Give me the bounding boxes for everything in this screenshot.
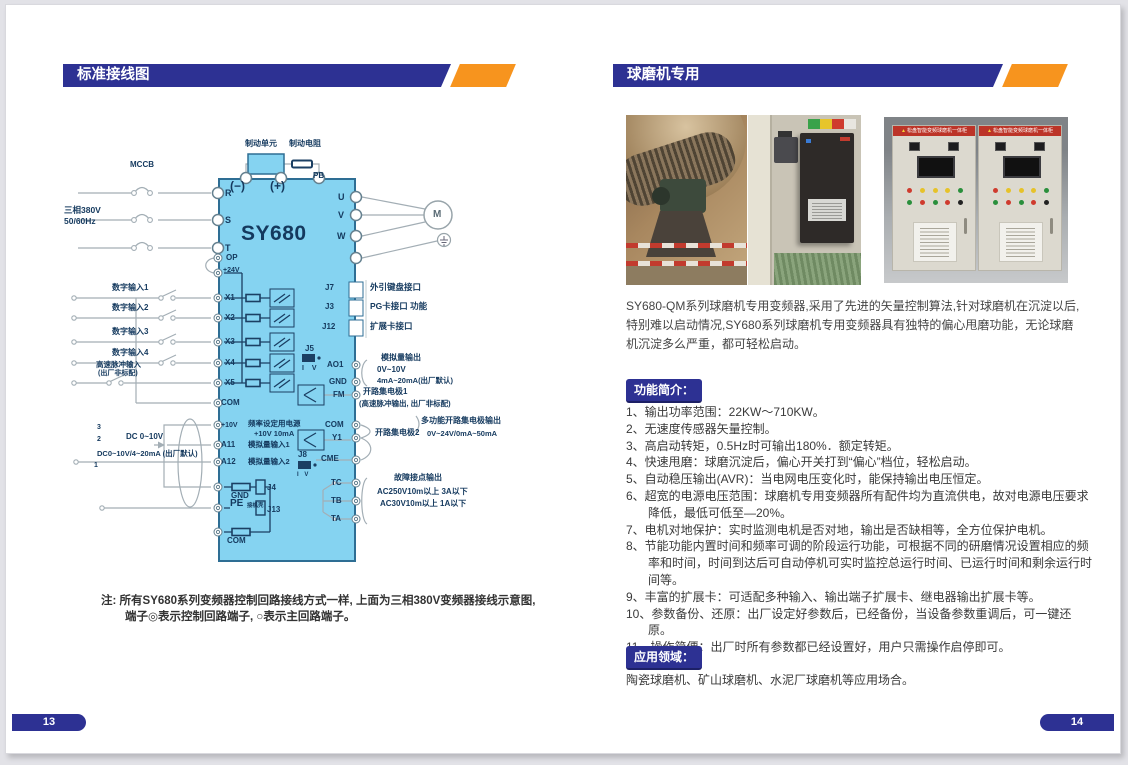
feature-item-5: 5、自动稳压输出(AVR)：当电网电压变化时，能保持输出电压恒定。 xyxy=(626,471,1094,488)
terminal-x1: X1 xyxy=(225,294,235,302)
digital-input-2: 数字输入2 xyxy=(112,304,148,312)
photo-ball-mill xyxy=(626,115,747,285)
photo-cabinet-pair: ▲松盘智能变频球磨机一体柜 ▲松盘智能变频球磨机一体柜 xyxy=(884,117,1068,283)
cabinet-banner-text: 松盘智能变频球磨机一体柜 xyxy=(993,128,1053,134)
connector-j7: J7 xyxy=(325,284,334,292)
diagram-label-mccb: MCCB xyxy=(130,161,154,169)
indicator-light xyxy=(993,188,998,193)
inverter-model: SY680 xyxy=(241,223,307,244)
panel-meter xyxy=(909,142,920,151)
push-button xyxy=(945,200,950,205)
applications-title-badge: 应用领域： xyxy=(626,646,702,670)
push-button xyxy=(1044,200,1049,205)
spec-plate xyxy=(999,222,1043,262)
digital-input-1: 数字输入1 xyxy=(112,284,148,292)
terminal-10v: +10V xyxy=(221,422,238,429)
terminal-t: T xyxy=(225,244,231,253)
fault-output-spec1: AC250V10m以上 3A以下 xyxy=(377,488,468,496)
inverter-brand-strip xyxy=(840,137,850,141)
push-button xyxy=(958,200,963,205)
indicator-light xyxy=(945,188,950,193)
section-header-left: 标准接线图 xyxy=(63,64,511,87)
safety-rail xyxy=(626,243,747,248)
photo-cabinet-interior xyxy=(748,115,861,285)
terminal-fm: FM xyxy=(333,391,345,399)
fault-output-spec2: AC30V10m以上 1A以下 xyxy=(380,500,466,508)
cabinet-banner: ▲松盘智能变频球磨机一体柜 xyxy=(893,126,975,136)
applications-text: 陶瓷球磨机、矿山球磨机、水泥厂球磨机等应用场合。 xyxy=(626,671,1084,688)
pulse-input-sub: (出厂非标配) xyxy=(98,370,138,377)
terminal-u: U xyxy=(338,193,345,202)
jumper-j8-iv: I V xyxy=(297,472,310,478)
cabinet-wiring xyxy=(774,253,861,285)
digital-input-3: 数字输入3 xyxy=(112,328,148,336)
terminal-plus: (+) xyxy=(270,180,285,192)
push-button xyxy=(1019,200,1024,205)
cabinet-door xyxy=(748,115,772,285)
banner-accent xyxy=(450,64,516,87)
page-title-left: 标准接线图 xyxy=(77,67,150,83)
mill-base xyxy=(646,211,716,257)
connector-j3: J3 xyxy=(325,303,334,311)
terminal-ai1: A11 xyxy=(221,441,235,449)
pot-pin-2: 2 xyxy=(97,436,101,443)
banner-accent xyxy=(1002,64,1068,87)
dc-input-2-label: DC0~10V/4~20mA (出厂默认) xyxy=(97,450,198,458)
terminal-ta: TA xyxy=(331,515,341,523)
terminal-com-bottom: COM xyxy=(227,537,246,545)
feature-item-8: 8、节能功能内置时间和频率可调的阶段运行功能，可根据不同的研磨情况设置相应的频率… xyxy=(626,538,1094,588)
button-row xyxy=(907,200,963,205)
terminal-r: R xyxy=(225,189,232,198)
terminal-gnd2: GND xyxy=(329,378,347,386)
note-line-1: 注: 所有SY680系列变频器控制回路接线方式一样, 上面为三相380V变频器接… xyxy=(101,593,571,609)
terminal-y1: Y1 xyxy=(332,434,342,442)
terminal-com: COM xyxy=(221,399,240,407)
page-title-right: 球磨机专用 xyxy=(627,67,700,83)
terminal-pb: PB xyxy=(313,172,324,180)
freq-supply-label: 频率设定用电源 xyxy=(248,420,301,428)
catalog-spread: 标准接线图 xyxy=(5,4,1121,754)
multi-oc-label: 多功能开路集电极输出 xyxy=(421,417,501,425)
inverter-unit xyxy=(800,133,854,243)
indicator-light xyxy=(1044,188,1049,193)
inverter-nameplate xyxy=(808,199,846,221)
indicator-light xyxy=(933,188,938,193)
door-handle xyxy=(964,218,967,234)
push-button xyxy=(907,200,912,205)
terminal-x4: X4 xyxy=(225,359,235,367)
digital-input-4: 数字输入4 xyxy=(112,349,148,357)
terminal-op: OP xyxy=(226,254,238,262)
diagram-label-supply-hz: 50/60Hz xyxy=(64,217,96,226)
terminal-w: W xyxy=(337,232,346,241)
indicator-light xyxy=(1006,188,1011,193)
diagram-label-brake-unit: 制动单元 xyxy=(245,140,277,148)
diagram-note: 注: 所有SY680系列变频器控制回路接线方式一样, 上面为三相380V变频器接… xyxy=(101,593,571,625)
motor-symbol: M xyxy=(433,210,441,220)
spec-plate xyxy=(913,222,957,262)
jumper-j5-iv: I V xyxy=(302,365,320,372)
page-number-right: 14 xyxy=(1040,714,1114,731)
expansion-card-label: 扩展卡接口 xyxy=(370,322,413,331)
terminal-x5: X5 xyxy=(225,379,235,387)
indicator-strip xyxy=(808,119,856,129)
panel-meter xyxy=(1034,142,1045,151)
push-button xyxy=(1006,200,1011,205)
feature-item-2: 2、无速度传感器矢量控制。 xyxy=(626,421,1094,438)
terminal-cme: CME xyxy=(321,455,339,463)
open-collector-2-label: 开路集电极2 xyxy=(375,429,419,437)
terminal-x3: X3 xyxy=(225,338,235,346)
indicator-light xyxy=(1031,188,1036,193)
push-button xyxy=(993,200,998,205)
diagram-label-brake-resistor: 制动电阻 xyxy=(289,140,321,148)
feature-item-4: 4、快速甩磨：球磨沉淀后，偏心开关打到“偏心”档位，轻松启动。 xyxy=(626,454,1094,471)
indicator-light xyxy=(958,188,963,193)
features-list: 1、输出功率范围：22KW～710KW。 2、无速度传感器矢量控制。 3、高启动… xyxy=(626,404,1094,656)
analog-out-range1: 0V~10V xyxy=(377,366,406,374)
intro-paragraph: SY680-QM系列球磨机专用变频器,采用了先进的矢量控制算法,针对球磨机在沉淀… xyxy=(626,297,1084,354)
banner-bar: 球磨机专用 xyxy=(613,64,1003,87)
terminal-ao1: AO1 xyxy=(327,361,343,369)
button-row xyxy=(993,200,1049,205)
panel-display xyxy=(1003,156,1041,178)
fault-output-label: 故障接点输出 xyxy=(394,474,442,482)
indicator-light xyxy=(1019,188,1024,193)
mill-motor xyxy=(660,179,706,213)
warning-triangle-icon: ▲ xyxy=(901,128,906,134)
analog-input-2-label: 模拟量输入2 xyxy=(248,458,290,466)
indicator-light xyxy=(920,188,925,193)
cabinet-banner: ▲松盘智能变频球磨机一体柜 xyxy=(979,126,1061,136)
analog-out-label: 模拟量输出 xyxy=(381,354,421,362)
terminal-minus: (−) xyxy=(230,180,245,192)
panel-meter xyxy=(995,142,1006,151)
terminal-tb: TB xyxy=(331,497,342,505)
contactor xyxy=(774,137,798,163)
open-collector-1-sub: (高速脉冲输出, 出厂非标配) xyxy=(359,400,451,408)
open-collector-1-label: 开路集电极1 xyxy=(363,388,407,396)
push-button xyxy=(1031,200,1036,205)
feature-item-7: 7、电机对地保护：实时监测电机是否对地，输出是否缺相等，全方位保护电机。 xyxy=(626,522,1094,539)
banner-bar: 标准接线图 xyxy=(63,64,451,87)
features-title-badge: 功能简介： xyxy=(626,379,702,403)
safety-rail xyxy=(626,261,747,266)
feature-item-3: 3、高启动转矩，0.5Hz时可输出180%．额定转矩。 xyxy=(626,438,1094,455)
connector-j12: J12 xyxy=(322,323,335,331)
pot-pin-1: 1 xyxy=(94,462,98,469)
terminal-x2: X2 xyxy=(225,314,235,322)
indicator-lights-row xyxy=(907,188,963,193)
diagram-label-supply: 三相380V xyxy=(64,206,101,215)
feature-item-1: 1、输出功率范围：22KW～710KW。 xyxy=(626,404,1094,421)
terminal-pe: PE xyxy=(230,499,243,509)
panel-display xyxy=(917,156,955,178)
jumper-j4: J4 xyxy=(267,484,276,492)
panel-meter xyxy=(948,142,959,151)
door-handle xyxy=(1050,218,1053,234)
control-cabinet: ▲松盘智能变频球磨机一体柜 xyxy=(978,125,1062,271)
inverter-display xyxy=(806,139,811,143)
terminal-v: V xyxy=(338,211,344,220)
feature-item-10: 10、参数备份、还原：出厂设定好参数后，已经备份，当设备参数重调后，可一键还原。 xyxy=(626,606,1094,640)
multi-oc-range: 0V~24V/0mA~50mA xyxy=(427,430,497,438)
analog-input-1-label: 模拟量输入1 xyxy=(248,441,290,449)
terminal-ai2: A12 xyxy=(221,458,236,466)
push-button xyxy=(933,200,938,205)
terminal-com2: COM xyxy=(325,421,344,429)
analog-out-range2: 4mA~20mA(出厂默认) xyxy=(377,377,453,385)
wiring-diagram: MCCB 三相380V 50/60Hz 制动单元 制动电阻 (−) (+) PB… xyxy=(64,133,594,603)
indicator-light xyxy=(907,188,912,193)
jumper-j8: J8 xyxy=(298,451,307,459)
pg-card-label: PG卡接口 功能 xyxy=(370,302,427,311)
note-line-2: 端子◎表示控制回路端子, ○表示主回路端子。 xyxy=(101,609,571,625)
page-number-left: 13 xyxy=(12,714,86,731)
control-cabinet: ▲松盘智能变频球磨机一体柜 xyxy=(892,125,976,271)
dc-input-1-label: DC 0~10V xyxy=(126,433,163,441)
cabinet-banner-text: 松盘智能变频球磨机一体柜 xyxy=(907,128,967,134)
push-button xyxy=(920,200,925,205)
warning-triangle-icon: ▲ xyxy=(987,128,992,134)
terminal-pe-sub: 接机壳 xyxy=(247,504,264,510)
terminal-24v: +24V xyxy=(223,267,240,274)
pot-pin-3: 3 xyxy=(97,424,101,431)
indicator-lights-row xyxy=(993,188,1049,193)
freq-supply-spec: +10V 10mA xyxy=(254,430,294,438)
terminal-s: S xyxy=(225,216,231,225)
feature-item-6: 6、超宽的电源电压范围：球磨机专用变频器所有配件均为直流供电，故对电源电压要求降… xyxy=(626,488,1094,522)
jumper-j5: J5 xyxy=(305,345,314,353)
pulse-input-label: 高速脉冲输入 xyxy=(96,361,141,369)
section-header-right: 球磨机专用 xyxy=(613,64,1063,87)
feature-item-9: 9、丰富的扩展卡：可适配多种输入、输出端子扩展卡、继电器输出扩展卡等。 xyxy=(626,589,1094,606)
keyboard-port-label: 外引键盘接口 xyxy=(370,283,421,292)
jumper-j13: J13 xyxy=(267,506,280,514)
terminal-tc: TC xyxy=(331,479,342,487)
mill-floor xyxy=(626,263,747,285)
